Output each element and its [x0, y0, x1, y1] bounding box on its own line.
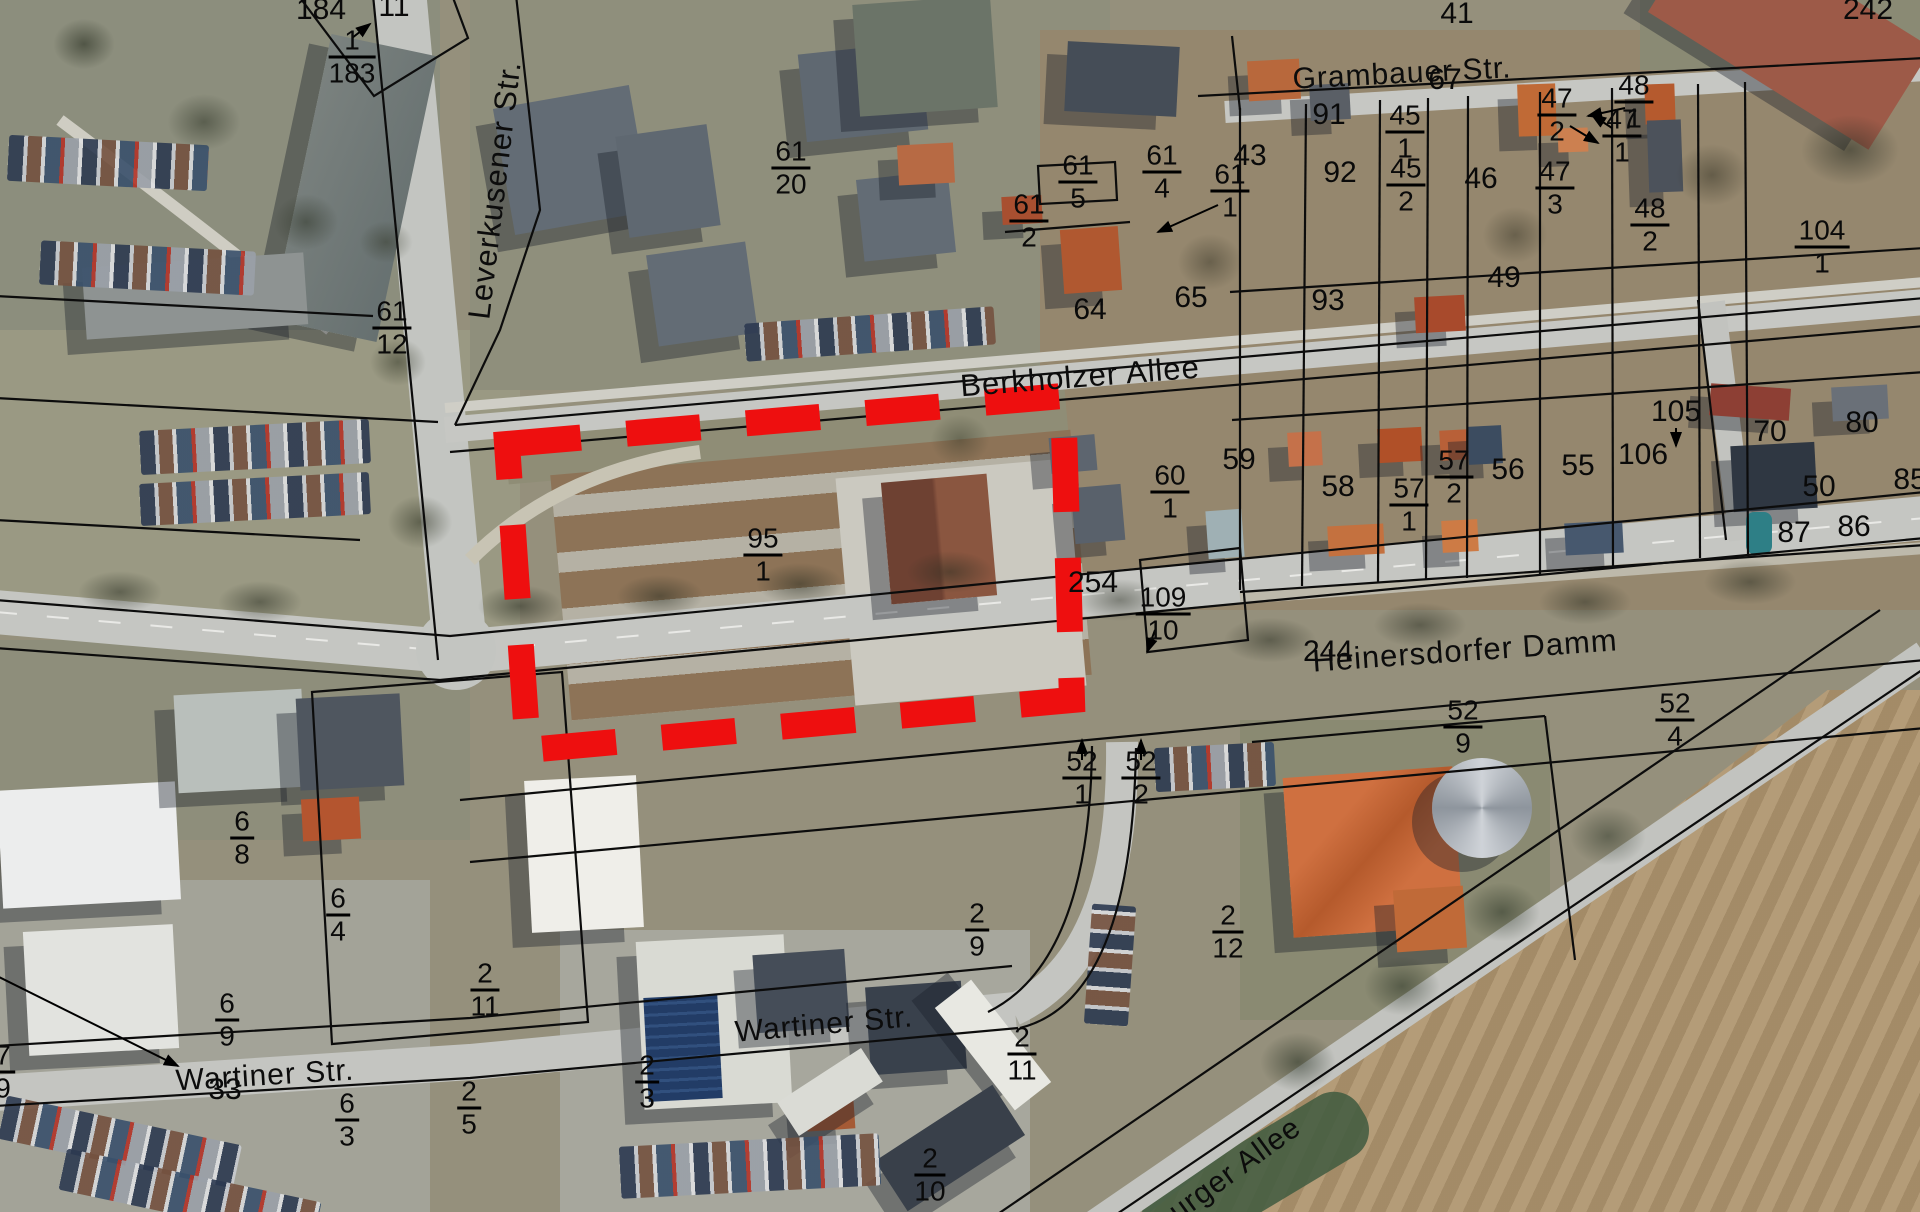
parcel-label: 184 — [296, 0, 346, 25]
parcel-label: 23 — [635, 1052, 659, 1113]
parcel-label: 64 — [326, 885, 350, 946]
parcel-label: 106 — [1618, 440, 1668, 470]
parcel-labels-layer: 1841111836112612061561261461191924345145… — [0, 0, 1920, 1212]
parcel-label: 1041 — [1795, 217, 1850, 278]
parcel-label: 521 — [1062, 748, 1101, 809]
parcel-label: 6120 — [771, 138, 810, 199]
parcel-label: 25 — [457, 1078, 481, 1139]
parcel-label: 92 — [1323, 158, 1356, 188]
parcel-label: 522 — [1121, 748, 1160, 809]
parcel-label: 50 — [1802, 472, 1835, 502]
parcel-label: 11 — [378, 0, 409, 22]
parcel-label: 79 — [0, 1042, 15, 1103]
parcel-label: 87 — [1777, 518, 1810, 548]
parcel-label: 85 — [1893, 465, 1920, 495]
parcel-label: 59 — [1222, 445, 1255, 475]
parcel-label: 41 — [1440, 0, 1473, 29]
parcel-label: 212 — [1212, 902, 1243, 963]
parcel-label: 614 — [1142, 142, 1181, 203]
parcel-label: 211 — [1007, 1024, 1036, 1085]
parcel-label: 6112 — [372, 298, 411, 359]
parcel-label: 93 — [1311, 286, 1344, 316]
parcel-label: 472 — [1537, 85, 1576, 146]
parcel-label: 524 — [1655, 690, 1694, 751]
parcel-label: 951 — [743, 525, 782, 586]
parcel-label: 63 — [335, 1090, 359, 1151]
parcel-label: 70 — [1753, 417, 1786, 447]
parcel-label: 601 — [1150, 462, 1189, 523]
parcel-label: 55 — [1561, 451, 1594, 481]
parcel-label: 68 — [230, 808, 254, 869]
parcel-label: 473 — [1535, 158, 1574, 219]
parcel-label: 58 — [1321, 472, 1354, 502]
parcel-label: 65 — [1174, 283, 1207, 313]
parcel-label: 56 — [1491, 455, 1524, 485]
parcel-label: 615 — [1058, 152, 1097, 213]
parcel-label: 571 — [1389, 475, 1428, 536]
parcel-label: 64 — [1073, 295, 1106, 325]
parcel-label: 244 — [1303, 637, 1353, 667]
parcel-label: 482 — [1630, 195, 1669, 256]
parcel-label: 572 — [1434, 447, 1473, 508]
parcel-label: 481 — [1614, 72, 1653, 133]
parcel-label: 43 — [1233, 141, 1266, 171]
aerial-cadastral-map[interactable]: Leverkusener Str.Berkholzer AlleeGrambau… — [0, 0, 1920, 1212]
parcel-label: 33 — [208, 1075, 241, 1105]
parcel-label: 67 — [1428, 65, 1461, 95]
parcel-label: 1183 — [329, 27, 376, 88]
parcel-label: 91 — [1312, 100, 1345, 130]
parcel-label: 86 — [1837, 512, 1870, 542]
parcel-label: 529 — [1443, 697, 1482, 758]
parcel-label: 49 — [1487, 263, 1520, 293]
parcel-label: 211 — [470, 960, 499, 1021]
parcel-label: 80 — [1845, 408, 1878, 438]
parcel-label: 210 — [914, 1145, 945, 1206]
parcel-label: 29 — [965, 900, 989, 961]
parcel-label: 242 — [1843, 0, 1893, 25]
parcel-label: 452 — [1386, 155, 1425, 216]
parcel-label: 10910 — [1136, 584, 1191, 645]
parcel-label: 69 — [215, 990, 239, 1051]
parcel-label: 254 — [1068, 568, 1118, 598]
parcel-label: 612 — [1009, 191, 1048, 252]
parcel-label: 46 — [1464, 164, 1497, 194]
parcel-label: 105 — [1651, 397, 1701, 427]
